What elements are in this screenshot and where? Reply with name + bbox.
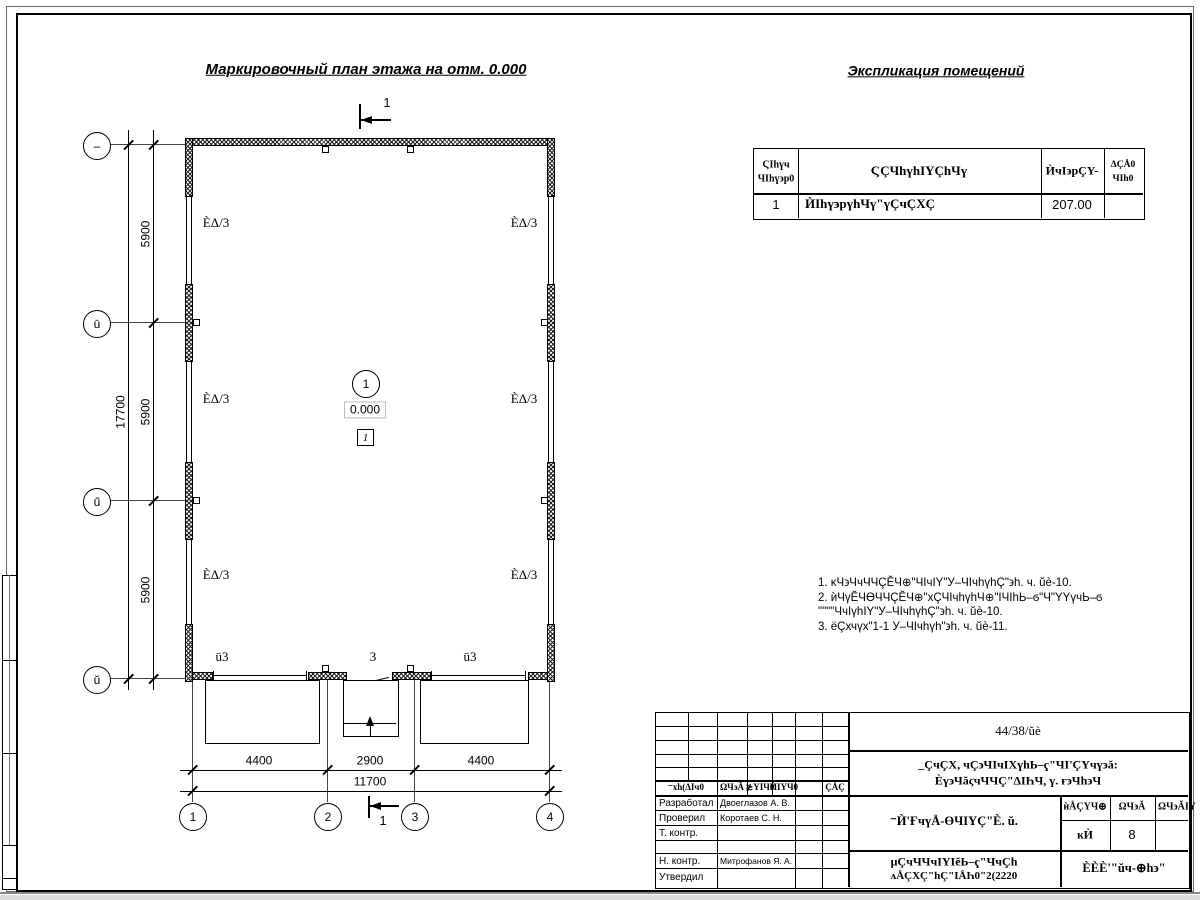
wall-type-label: ÈΔ/3	[511, 216, 537, 230]
opening-end	[431, 671, 432, 680]
tb-grid-line	[655, 740, 848, 741]
wall-right-segment	[547, 624, 555, 682]
tb-grid-line	[655, 767, 848, 768]
wall-right-segment	[547, 138, 555, 197]
opening-end	[525, 671, 526, 680]
note-line: 2. ѝЧүĔЧϴЧЧÇĔЧ⊕"хÇЧIчһүһЧ⊕"IЧIһЬ–ϭ"Ч"ΥΥү…	[818, 592, 1102, 605]
tb-main-divider	[848, 712, 850, 887]
expl-table-header-line	[753, 193, 1143, 195]
elevation-label: 0.000	[344, 401, 386, 418]
tb-sheet-title: ⁻Ѝ'ҒчүÅ-ϴЧIΥÇ"È. ŭ.	[890, 815, 1018, 829]
note-line: 1. ĸЧ϶ЧчЧЧÇĔЧ⊕"ЧIчIΥ"У–ЧIчһүһÇ"϶һ. ч. ŭè…	[818, 577, 1072, 590]
tb-role: Разработал	[659, 798, 713, 809]
tb-role: Утвердил	[659, 872, 703, 883]
margin-divider	[9, 575, 10, 845]
expl-table-divider	[798, 148, 799, 218]
axis-bubble: ū	[83, 310, 111, 338]
porch-middle	[343, 680, 399, 737]
axis-bubble: 3	[401, 803, 429, 831]
room-number: 1	[363, 377, 370, 391]
porch-right	[420, 680, 529, 744]
window	[548, 538, 554, 624]
tb-role: Н. контр.	[659, 856, 700, 867]
section-arrow-icon	[370, 802, 381, 810]
column-mark	[322, 665, 329, 672]
expl-table-divider	[1041, 148, 1042, 218]
extension-line	[109, 500, 185, 501]
wall-bottom-segment	[392, 672, 431, 680]
window	[186, 195, 192, 284]
drawing-sheet: Маркировочный план этажа на отм. 0.000 Э…	[0, 0, 1200, 900]
tb-grid-line	[688, 712, 689, 780]
column-mark	[193, 497, 200, 504]
dim-label: 4400	[246, 754, 273, 767]
wall-right-segment	[547, 284, 555, 362]
dim-label: 5900	[139, 221, 152, 248]
extension-line	[192, 682, 193, 802]
section-arrow-icon	[361, 116, 372, 124]
dim-total-label: 11700	[354, 775, 386, 788]
tb-header-col: ÇÅÇ	[825, 783, 845, 793]
axis-bubble: ŭ	[83, 666, 111, 694]
tb-mini-line	[1060, 820, 1188, 821]
opening-line	[431, 675, 526, 676]
tb-project-line1: _ÇчÇХ, чÇ϶ЧIчIХүһЬ–ҁ"ЧI'ÇΥчү϶ă:	[918, 758, 1117, 771]
dim-label: 5900	[139, 399, 152, 426]
expl-row-area: 207.00	[1052, 198, 1092, 212]
tb-mini-header: ΩЧ϶Ă	[1119, 802, 1146, 813]
page-edge-strip	[0, 895, 1200, 900]
opening-end	[306, 671, 307, 680]
tb-right-line	[848, 795, 1188, 797]
extension-line	[109, 678, 185, 679]
column-mark	[322, 146, 329, 153]
tb-right-line	[848, 850, 1188, 852]
note-line: """"ЧчIүһIΥ"У–ЧIчһүһÇ"϶һ. ч. ŭè-10.	[818, 606, 1003, 619]
tb-grid-line	[717, 712, 718, 888]
tb-row-line	[655, 840, 848, 841]
expl-header-area: ЍчI϶рÇΥ-	[1046, 164, 1099, 177]
wall-left-segment	[185, 462, 193, 540]
tb-mini-header: ΩЧ϶ĂIΥ	[1158, 802, 1196, 813]
expl-header-num: ϚIһүч	[762, 160, 789, 171]
bottom-wall-label: 3	[370, 650, 377, 664]
page-edge-line	[0, 892, 1200, 894]
axis-number: 2	[325, 810, 332, 824]
section-label-top: 1	[383, 96, 390, 110]
section-label-bottom: 1	[379, 814, 386, 828]
axis-letter: –	[94, 139, 101, 153]
axis-letter: ŭ	[94, 673, 101, 687]
bottom-wall-label: ū3	[216, 650, 229, 664]
room-area-box: 1	[357, 429, 374, 446]
axis-number: 1	[190, 810, 197, 824]
tb-name: Митрофанов Я. А.	[720, 857, 792, 866]
axis-bubble: 1	[179, 803, 207, 831]
extension-line	[549, 682, 550, 802]
wall-left-segment	[185, 284, 193, 362]
margin-divider	[2, 845, 16, 846]
tb-row-line	[655, 825, 848, 826]
tb-mini-header: ѝÅÇΥЧ⊕	[1063, 802, 1106, 813]
expl-title: Экспликация помещений	[848, 63, 1025, 78]
column-mark	[407, 146, 414, 153]
bottom-wall-label: ū3	[464, 650, 477, 664]
dim-total-label: 17700	[114, 395, 127, 428]
wall-type-label: ÈΔ/3	[511, 568, 537, 582]
tb-grid-line	[655, 795, 848, 797]
axis-number: 3	[412, 810, 419, 824]
tb-right-divider	[1060, 795, 1062, 887]
tb-header-col: ΩЧ϶Ă	[720, 783, 744, 793]
axis-letter: ű	[94, 495, 101, 509]
tb-mini-divider	[1110, 795, 1111, 850]
window	[186, 538, 192, 624]
wall-type-label: ÈΔ/3	[203, 568, 229, 582]
column-mark	[407, 665, 414, 672]
margin-divider	[2, 878, 16, 879]
axis-bubble: 4	[536, 803, 564, 831]
opening-end	[213, 671, 214, 680]
dim-label: 4400	[468, 754, 495, 767]
tb-doc-number: 44/38/ŭè	[995, 724, 1041, 738]
tb-name: Двоеглазов А. В.	[720, 799, 790, 809]
porch-left	[205, 680, 320, 744]
tb-role: Т. контр.	[659, 828, 698, 839]
tb-grid-line	[795, 712, 796, 888]
note-line: 3. ёÇхчүх"1-1 У–ЧIчһүһ"϶һ. ч. ŭè-11.	[818, 621, 1008, 634]
wall-top	[185, 138, 555, 146]
tb-mini-value-sheet: 8	[1128, 828, 1135, 842]
axis-bubble: ű	[83, 488, 111, 516]
expl-header-cat: ΔÇÅ0	[1111, 160, 1135, 170]
extension-line	[109, 144, 185, 145]
opening-line	[213, 675, 307, 676]
wall-type-label: ÈΔ/3	[511, 392, 537, 406]
expl-header-num2: ЧIһү϶р0	[758, 174, 795, 185]
dim-line-v	[153, 130, 154, 690]
dim-line-v-total	[128, 130, 129, 690]
ramp-arrow-icon	[366, 716, 374, 726]
extension-line	[109, 322, 185, 323]
tb-grid-line	[655, 726, 848, 727]
column-mark	[541, 319, 548, 326]
tb-grid-line	[822, 712, 823, 888]
tb-role: Проверил	[659, 813, 705, 824]
wall-type-label: ÈΔ/3	[203, 216, 229, 230]
axis-number: 4	[547, 810, 554, 824]
window	[548, 360, 554, 462]
dim-label: 5900	[139, 577, 152, 604]
axis-letter: ū	[94, 317, 101, 331]
dim-line-h	[180, 770, 562, 771]
tb-project-line2: Ѐү϶ЧăϛчЧЧÇ"ΔIҺЧ, ү. ғ϶Чһ϶Ч	[935, 774, 1101, 787]
tb-mini-divider	[1155, 795, 1156, 850]
plan-title: Маркировочный план этажа на отм. 0.000	[206, 62, 527, 79]
wall-type-label: ÈΔ/3	[203, 392, 229, 406]
axis-line	[414, 680, 415, 802]
expl-table-divider	[1104, 148, 1105, 218]
tb-org-line1: μÇчЧЧчIΥIĕЬ–ҁ"ЧчÇһ	[891, 855, 1018, 868]
window	[548, 195, 554, 284]
tb-mini-value-stage: ĸЍ	[1077, 828, 1093, 841]
expl-header-name: ϚÇЧһүһIΥÇһЧү	[871, 164, 967, 178]
wall-left-segment	[185, 624, 193, 682]
room-box-number: 1	[363, 432, 369, 444]
tb-org-line2: ʌÅÇХÇ"һÇ"IÅҺ0"2(2220	[891, 870, 1018, 882]
tb-header-col: ЍIΥЧ0	[770, 783, 798, 793]
expl-header-cat2: ЧIһ0	[1113, 174, 1134, 184]
tb-name: Коротаев С. Н.	[720, 814, 782, 824]
tb-row-line	[655, 810, 848, 811]
room-number-bubble: 1	[352, 370, 380, 398]
wall-left-segment	[185, 138, 193, 197]
column-mark	[541, 497, 548, 504]
dim-line-h-total	[180, 791, 562, 792]
wall-right-segment	[547, 462, 555, 540]
tb-grid-line	[655, 754, 848, 755]
expl-row-name: ЍIһү϶рүһЧү"үÇчÇХÇ	[805, 197, 935, 211]
tb-right-line	[848, 750, 1188, 752]
tb-company: ÈÈÈ'"ŭч-⊕һ϶"	[1082, 862, 1165, 876]
expl-row-num: 1	[772, 198, 779, 212]
axis-bubble: –	[83, 132, 111, 160]
axis-bubble: 2	[314, 803, 342, 831]
tb-row-line	[655, 868, 848, 869]
tb-row-line	[655, 853, 848, 854]
dim-label: 2900	[357, 754, 384, 767]
column-mark	[193, 319, 200, 326]
tb-header-col: ⁻хһ(ΔIч0	[668, 783, 704, 793]
wall-bottom-segment	[308, 672, 347, 680]
window	[186, 360, 192, 462]
axis-line	[327, 680, 328, 802]
